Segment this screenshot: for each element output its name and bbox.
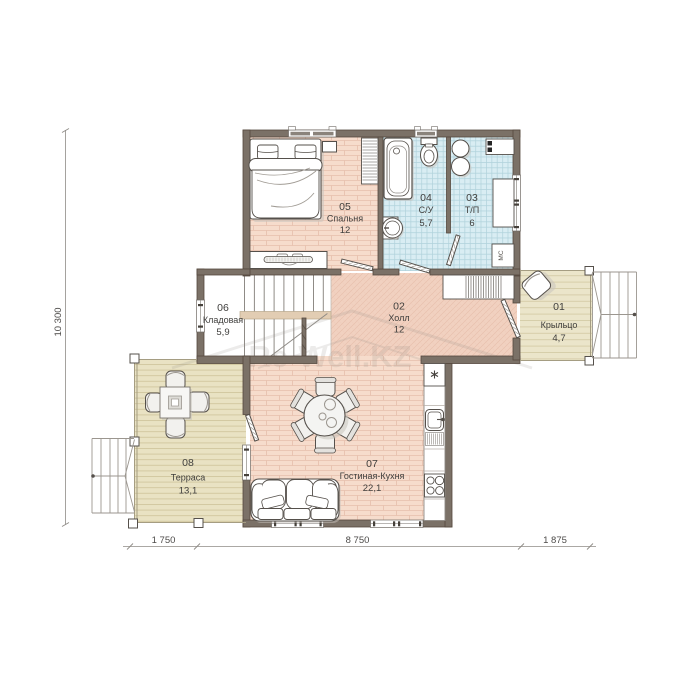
svg-text:1 875: 1 875 bbox=[543, 535, 567, 546]
svg-text:8 750: 8 750 bbox=[346, 535, 370, 546]
svg-text:10 300: 10 300 bbox=[53, 307, 64, 336]
svg-text:Крыльцо: Крыльцо bbox=[541, 320, 578, 330]
svg-text:02: 02 bbox=[393, 301, 405, 313]
svg-text:07: 07 bbox=[366, 458, 378, 470]
svg-text:13,1: 13,1 bbox=[179, 486, 198, 497]
svg-text:01: 01 bbox=[553, 301, 565, 313]
svg-text:05: 05 bbox=[339, 201, 351, 213]
svg-text:Терраса: Терраса bbox=[171, 473, 206, 483]
svg-text:08: 08 bbox=[182, 457, 194, 469]
svg-text:Гостиная-Кухня: Гостиная-Кухня bbox=[340, 471, 405, 481]
svg-text:12: 12 bbox=[340, 225, 351, 236]
svg-text:С/У: С/У bbox=[419, 205, 434, 215]
svg-text:Кладовая: Кладовая bbox=[203, 315, 243, 325]
svg-text:12: 12 bbox=[394, 325, 405, 336]
svg-text:4,7: 4,7 bbox=[552, 333, 565, 344]
svg-text:Спальня: Спальня bbox=[327, 214, 363, 224]
svg-text:03: 03 bbox=[466, 192, 478, 204]
svg-text:Холл: Холл bbox=[388, 313, 409, 323]
svg-text:Т/П: Т/П bbox=[465, 205, 479, 215]
svg-text:5,7: 5,7 bbox=[419, 218, 432, 229]
svg-text:5,9: 5,9 bbox=[216, 327, 229, 338]
svg-text:1 750: 1 750 bbox=[152, 535, 176, 546]
svg-text:06: 06 bbox=[217, 302, 229, 314]
svg-text:04: 04 bbox=[420, 192, 432, 204]
svg-text:6: 6 bbox=[469, 218, 474, 229]
svg-text:МС: МС bbox=[498, 250, 505, 260]
svg-text:22,1: 22,1 bbox=[363, 483, 382, 494]
